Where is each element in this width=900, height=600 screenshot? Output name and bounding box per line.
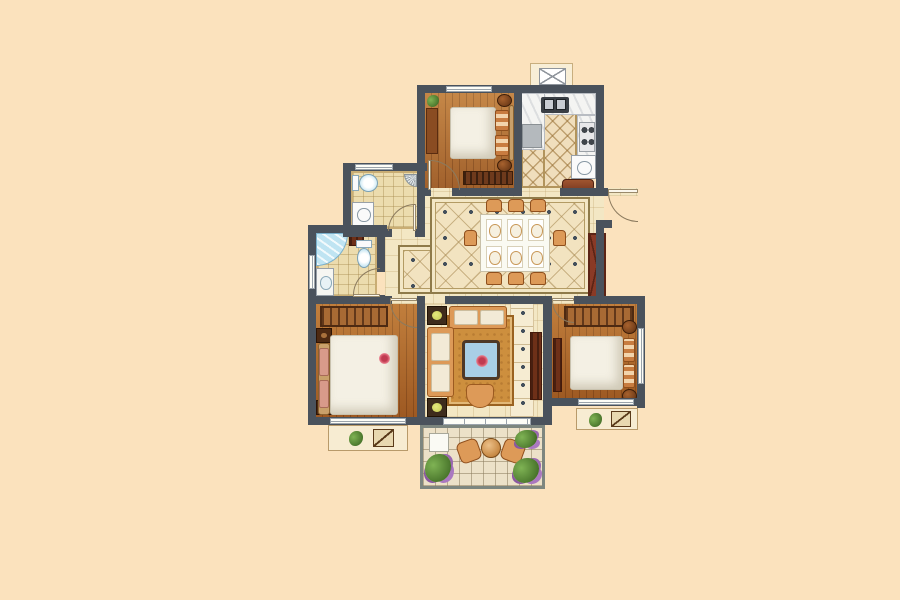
bay-window-right <box>576 408 638 430</box>
plant-icon <box>349 431 363 446</box>
dining-chair <box>530 199 546 212</box>
floor-plan <box>0 0 900 600</box>
toilet-icon <box>356 240 372 248</box>
toilet-bowl-icon <box>357 248 371 268</box>
window <box>330 418 406 424</box>
dining-chair <box>464 230 477 246</box>
bed <box>570 336 623 390</box>
lower-cabinet <box>571 155 596 179</box>
wall-segment <box>415 229 425 237</box>
coffee-table <box>462 340 500 380</box>
lamp-table-icon <box>427 306 447 325</box>
kitchen-floor-2 <box>521 148 545 188</box>
sofa-cushion <box>431 364 450 392</box>
bay-window-left <box>328 425 408 451</box>
desk <box>426 108 438 154</box>
wall-segment <box>417 296 425 425</box>
dining-chair <box>508 199 524 212</box>
bench <box>463 171 513 185</box>
wall-segment <box>308 296 392 304</box>
dining-table <box>480 214 550 272</box>
mini-chair-icon <box>373 429 394 447</box>
window <box>355 164 393 170</box>
bed <box>330 335 398 415</box>
washing-machine-icon <box>352 202 374 226</box>
wall-segment <box>417 85 425 197</box>
pillow <box>319 348 329 376</box>
wall-segment <box>308 225 387 233</box>
wall-segment <box>514 85 522 188</box>
dining-chair <box>553 230 566 246</box>
flower-deco <box>475 354 489 368</box>
plant-icon <box>589 413 602 427</box>
place-setting <box>486 246 502 268</box>
wall-segment <box>308 304 316 425</box>
tv-cabinet <box>530 332 542 400</box>
sofa-cushion <box>454 310 478 325</box>
nightstand-icon <box>497 94 512 107</box>
window <box>578 399 634 405</box>
balcony <box>420 425 545 489</box>
corner-sofa <box>427 327 454 397</box>
toilet-icon <box>352 175 359 191</box>
living-room <box>425 304 543 417</box>
dresser <box>553 338 562 392</box>
dining-chair <box>530 272 546 285</box>
wardrobe <box>320 306 388 327</box>
chaise-sofa <box>449 306 507 329</box>
place-setting <box>507 219 523 241</box>
balcony-table <box>481 438 501 458</box>
pillow <box>495 135 509 156</box>
wall-segment <box>445 296 552 304</box>
bed <box>450 107 496 159</box>
window <box>638 328 644 384</box>
pillow <box>495 110 509 131</box>
dining-chair <box>486 199 502 212</box>
kitchen-sink-icon <box>541 97 569 113</box>
wall-segment <box>596 220 604 304</box>
wall-segment <box>452 188 522 196</box>
planter-box <box>429 433 449 452</box>
window <box>309 255 315 289</box>
fridge-icon <box>522 124 542 148</box>
place-setting <box>486 219 502 241</box>
pillow <box>623 338 635 362</box>
wall-segment <box>543 296 552 425</box>
vanity-sink-icon <box>316 268 334 296</box>
entry-door-arc <box>608 192 638 222</box>
toilet-bowl-icon <box>359 174 378 192</box>
dining-chair <box>486 272 502 285</box>
sofa-cushion <box>431 333 450 361</box>
place-setting <box>528 246 544 268</box>
nightstand-icon <box>622 320 637 334</box>
wall-segment <box>574 296 645 304</box>
pillow <box>319 380 329 408</box>
dining-chair <box>508 272 524 285</box>
place-setting <box>528 219 544 241</box>
dining-set <box>460 196 570 291</box>
balcony-sliding-door <box>443 418 531 425</box>
window <box>446 86 492 92</box>
stove-icon <box>579 122 595 152</box>
sofa-cushion <box>480 310 504 325</box>
vent-x-icon <box>539 68 566 85</box>
mini-chair-icon <box>611 411 631 427</box>
wall-segment <box>377 225 385 272</box>
red-flower-deco <box>378 352 391 365</box>
wall-segment <box>596 85 604 196</box>
pillow <box>623 364 635 388</box>
wall-segment <box>596 188 608 196</box>
place-setting <box>507 246 523 268</box>
lamp-table-icon <box>427 398 447 417</box>
